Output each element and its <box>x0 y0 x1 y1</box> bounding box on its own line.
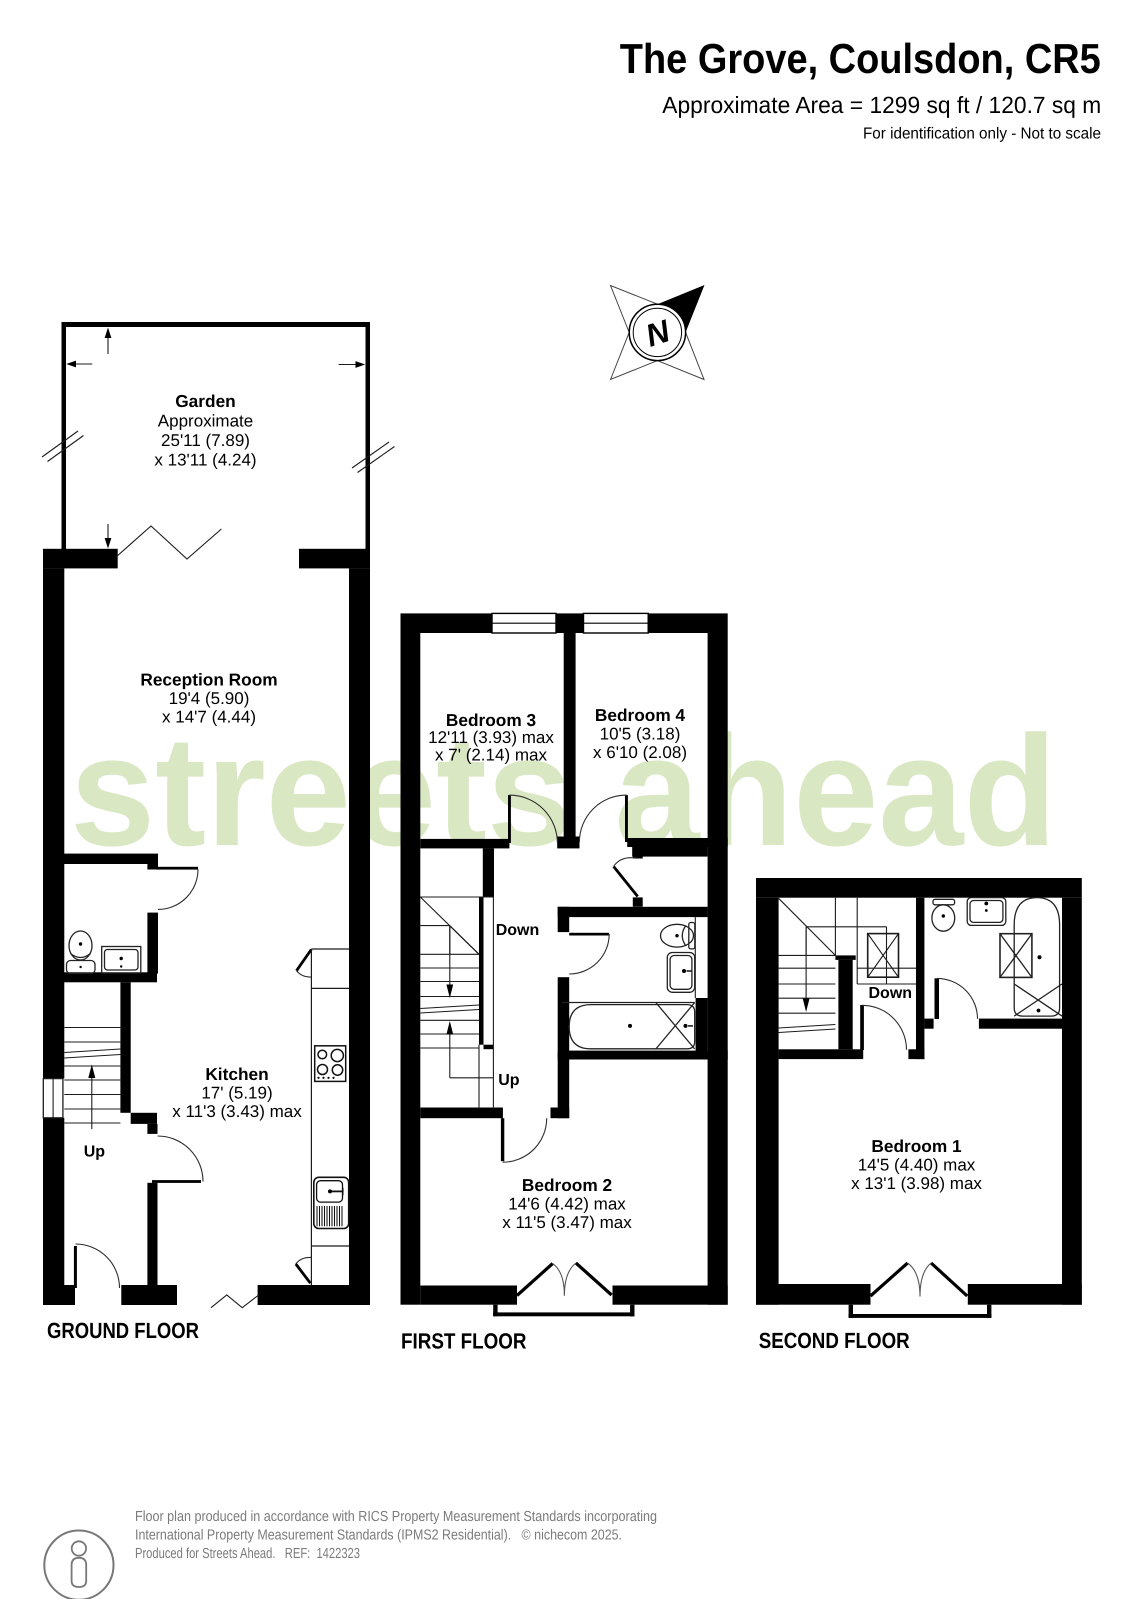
svg-text:Up: Up <box>84 1144 106 1161</box>
svg-text:SECOND FLOOR: SECOND FLOOR <box>759 1328 910 1353</box>
svg-text:14'5 (4.40) max: 14'5 (4.40) max <box>858 1155 976 1174</box>
svg-text:Produced for Streets Ahead.: Produced for Streets Ahead. REF: 1422323 <box>135 1546 360 1562</box>
svg-text:Kitchen: Kitchen <box>205 1064 268 1084</box>
svg-text:x 11'3 (3.43) max: x 11'3 (3.43) max <box>172 1102 302 1121</box>
svg-text:10'5 (3.18): 10'5 (3.18) <box>600 725 681 744</box>
svg-text:Approximate Area = 1299 sq ft: Approximate Area = 1299 sq ft / 120.7 sq… <box>662 92 1101 118</box>
svg-text:x 13'1 (3.98) max: x 13'1 (3.98) max <box>851 1174 982 1193</box>
svg-text:x 11'5 (3.47) max: x 11'5 (3.47) max <box>502 1213 632 1232</box>
svg-text:Bedroom 1: Bedroom 1 <box>871 1136 962 1156</box>
svg-text:The Grove, Coulsdon, CR5: The Grove, Coulsdon, CR5 <box>620 35 1101 82</box>
svg-text:Down: Down <box>869 985 913 1002</box>
svg-text:Approximate: Approximate <box>158 412 253 431</box>
svg-text:19'4 (5.90): 19'4 (5.90) <box>169 689 250 708</box>
svg-text:Down: Down <box>496 922 540 939</box>
svg-text:Bedroom 4: Bedroom 4 <box>595 705 686 725</box>
svg-text:GROUND FLOOR: GROUND FLOOR <box>47 1318 199 1343</box>
svg-text:Bedroom 2: Bedroom 2 <box>522 1175 612 1195</box>
svg-text:streets ahead: streets ahead <box>70 704 1057 879</box>
svg-text:12'11 (3.93) max: 12'11 (3.93) max <box>428 728 554 747</box>
svg-text:25'11 (7.89): 25'11 (7.89) <box>161 431 250 450</box>
svg-text:x 14'7 (4.44): x 14'7 (4.44) <box>162 708 256 727</box>
svg-text:14'6 (4.42) max: 14'6 (4.42) max <box>508 1195 626 1214</box>
svg-text:Reception Room: Reception Room <box>140 670 277 690</box>
svg-text:Up: Up <box>498 1072 520 1089</box>
svg-text:International Property Measure: International Property Measurement Stand… <box>135 1528 622 1544</box>
svg-text:x 13'11 (4.24): x 13'11 (4.24) <box>154 451 256 470</box>
svg-text:x 7' (2.14) max: x 7' (2.14) max <box>435 746 547 765</box>
svg-text:17' (5.19): 17' (5.19) <box>201 1083 272 1102</box>
svg-text:FIRST FLOOR: FIRST FLOOR <box>401 1328 527 1353</box>
svg-text:x 6'10 (2.08): x 6'10 (2.08) <box>593 743 687 762</box>
svg-text:Garden: Garden <box>175 391 236 411</box>
svg-text:Floor plan produced in accorda: Floor plan produced in accordance with R… <box>135 1509 657 1525</box>
svg-text:For identification only - Not: For identification only - Not to scale <box>863 125 1101 142</box>
